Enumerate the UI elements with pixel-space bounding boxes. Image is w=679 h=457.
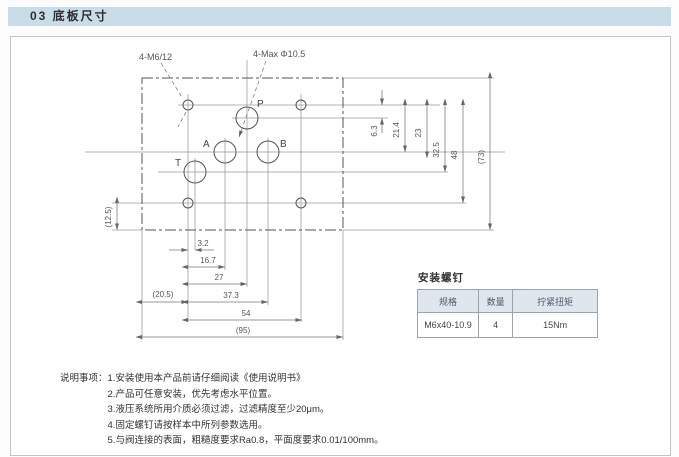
bolt-callout-label: 4-M6/12 (139, 52, 172, 62)
mounting-screw-table: 规格 数量 拧紧扭矩 M6x40-10.9 4 15Nm (417, 289, 598, 338)
base-plate-outline (142, 78, 343, 230)
callout-leaders (161, 61, 266, 137)
table-row: M6x40-10.9 4 15Nm (418, 313, 598, 338)
notes-label: 说明事项： (60, 371, 108, 449)
dim-label-23: 23 (414, 128, 423, 137)
port-label-p: P (257, 99, 264, 110)
col-header-qty: 数量 (478, 290, 512, 313)
cell-torque: 15Nm (513, 313, 598, 338)
mounting-screw-title: 安装螺钉 (418, 270, 598, 285)
dim-label-16-7: 16.7 (200, 256, 216, 265)
dim-label-37-3: 37.3 (223, 291, 239, 300)
note-item-2: 2.产品可任意安装，优先考虑水平位置。 (108, 387, 384, 403)
port-label-a: A (203, 139, 210, 150)
dim-label-95: (95) (236, 326, 251, 335)
dim-label-12-5: (12.5) (104, 206, 113, 227)
notes-items: 1.安装使用本产品前请仔细阅读《使用说明书》 2.产品可任意安装，优先考虑水平位… (108, 371, 384, 449)
cell-spec: M6x40-10.9 (418, 313, 479, 338)
dim-label-21-4: 21.4 (392, 122, 401, 138)
dim-label-32-5: 32.5 (432, 142, 441, 158)
dim-label-6-3: 6.3 (370, 125, 379, 137)
mounting-screw-block: 安装螺钉 规格 数量 拧紧扭矩 M6x40-10.9 4 15Nm (417, 270, 598, 338)
dim-label-27: 27 (215, 273, 224, 282)
dim-label-3-2: 3.2 (197, 239, 209, 248)
note-item-1: 1.安装使用本产品前请仔细阅读《使用说明书》 (108, 371, 384, 387)
dim-label-20-5: (20.5) (153, 290, 174, 299)
cell-qty: 4 (478, 313, 512, 338)
dim-label-73: (73) (477, 150, 486, 165)
col-header-spec: 规格 (418, 290, 479, 313)
notes-block: 说明事项： 1.安装使用本产品前请仔细阅读《使用说明书》 2.产品可任意安装，优… (60, 371, 645, 449)
table-header-row: 规格 数量 拧紧扭矩 (418, 290, 598, 313)
port-label-b: B (280, 139, 287, 150)
dim-label-48: 48 (450, 150, 459, 159)
col-header-torque: 拧紧扭矩 (513, 290, 598, 313)
port-callout-label: 4-Max Φ10.5 (253, 49, 305, 59)
note-item-4: 4.固定螺钉请按样本中所列参数选用。 (108, 418, 384, 434)
note-item-3: 3.液压系统所用介质必须过滤，过滤精度至少20μm。 (108, 402, 384, 418)
port-label-t: T (175, 158, 181, 169)
note-item-5: 5.与阀连接的表面，粗糙度要求Ra0.8，平面度要求0.01/100mm。 (108, 433, 384, 449)
dim-label-54: 54 (242, 309, 251, 318)
